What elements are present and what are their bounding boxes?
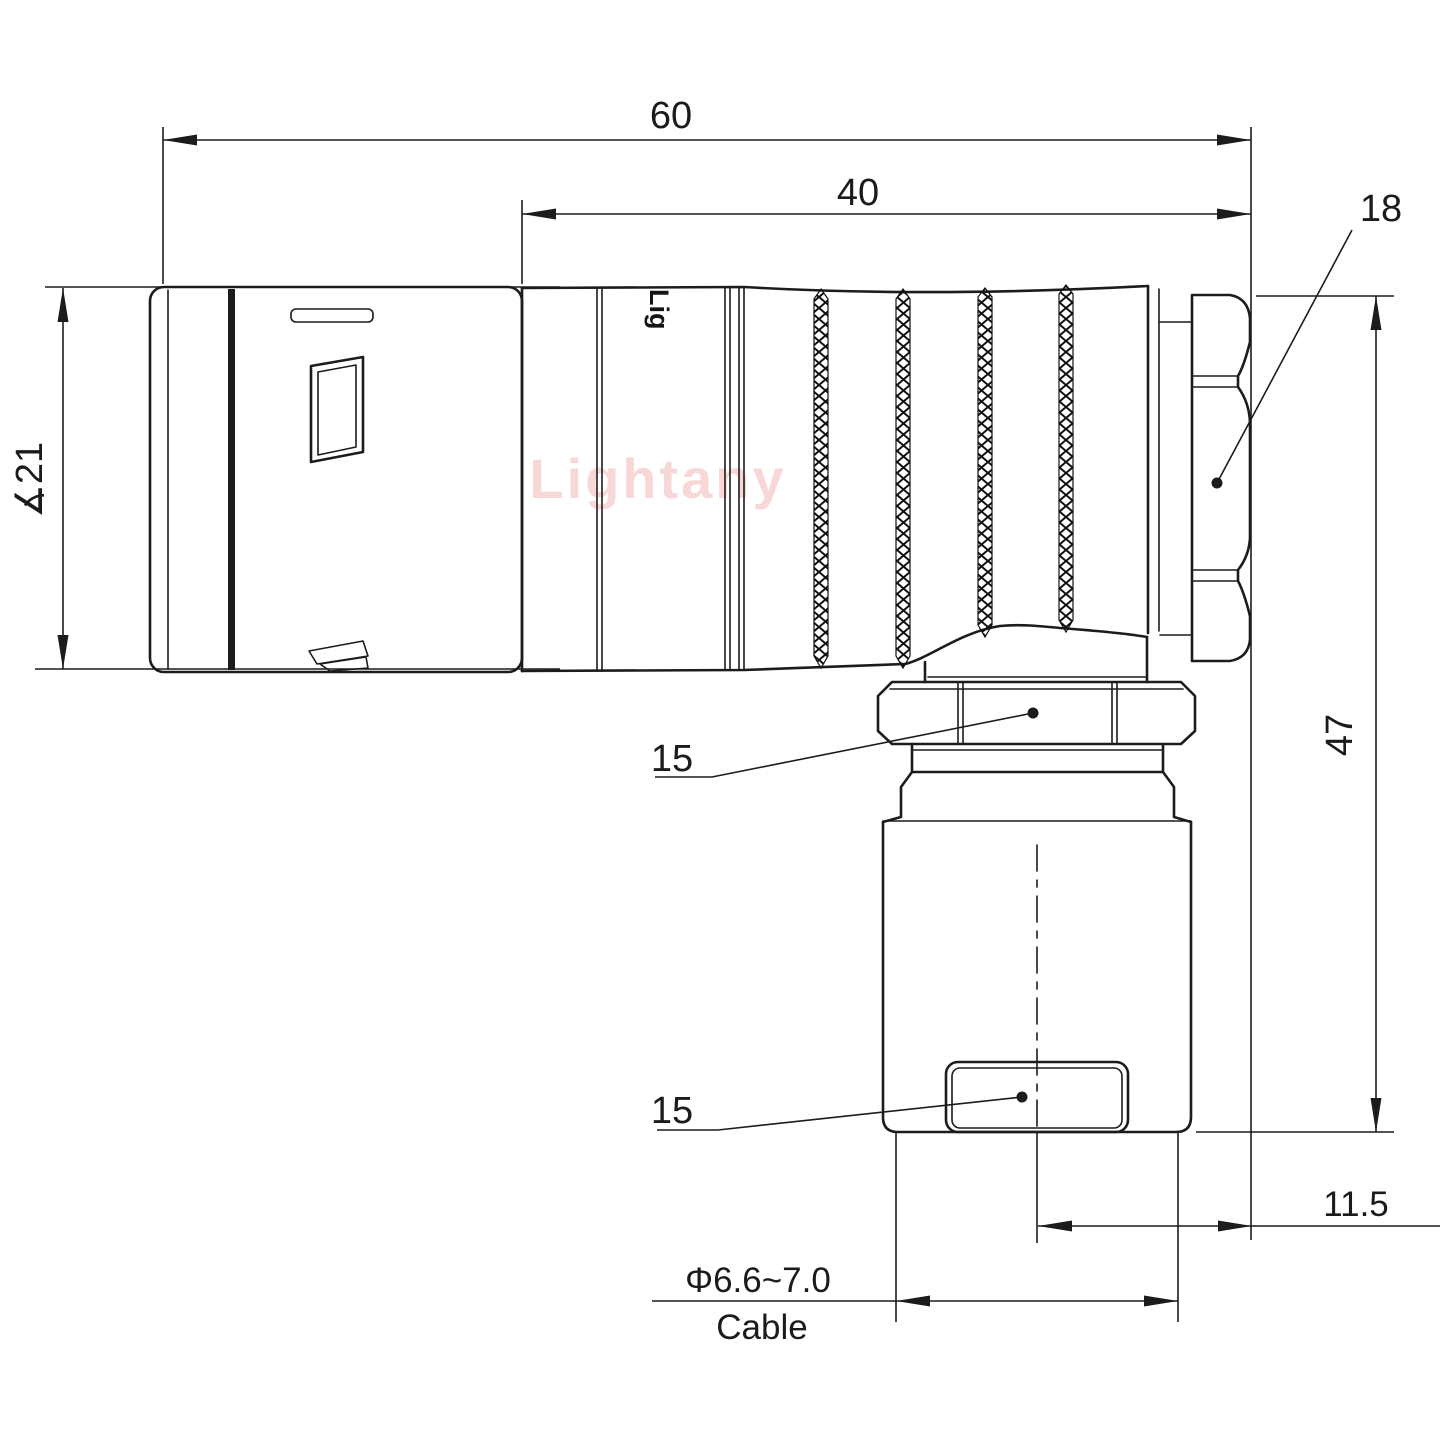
dim-value-15-upper: 15 (651, 738, 693, 780)
dimension-cable: Φ6.6~7.0 Cable (652, 1133, 1178, 1347)
key-boss-top (291, 309, 373, 322)
body-engraving: Lig (644, 289, 674, 330)
key-window-inner (318, 365, 356, 455)
plug-band (228, 289, 235, 670)
arrow-21-bottom (58, 635, 69, 669)
body-engraving-text: Lig (644, 289, 674, 330)
flare-outline (883, 772, 1191, 822)
knurl-band-2 (896, 289, 910, 668)
dim-value-47: 47 (1319, 714, 1361, 756)
back-nut-outline (1192, 295, 1250, 661)
dimension-47: 47 (1196, 296, 1394, 1132)
dim-value-dia21: ∡21 (9, 442, 51, 518)
knurl-bands (814, 285, 1073, 668)
arrow-40-left (522, 209, 556, 220)
plug-shell (150, 287, 522, 672)
dim-label-cable: Cable (716, 1308, 807, 1347)
arrow-21-top (58, 288, 69, 322)
dimension-11-5: 11.5 (1037, 1133, 1440, 1243)
technical-drawing-page: Lightany Lig (0, 0, 1440, 1440)
arrow-47-top (1371, 296, 1382, 330)
arrow-60-right (1217, 135, 1251, 146)
dim-value-cable-diameter: Φ6.6~7.0 (685, 1261, 831, 1300)
arrow-47-bottom (1371, 1098, 1382, 1132)
connector-dimension-drawing: Lightany Lig (0, 0, 1440, 1440)
knurl-band-3 (978, 288, 992, 637)
body-bottom-edge (522, 625, 1147, 671)
dim-value-60: 60 (650, 95, 692, 137)
ring-outline (912, 744, 1163, 772)
body-top-edge (522, 286, 1148, 292)
dimension-15-cable-clamp: 15 (651, 1090, 1022, 1132)
dim-value-15-lower: 15 (651, 1090, 693, 1132)
dimension-15-elbow-nut: 15 (651, 713, 1033, 780)
knurl-band-1 (814, 289, 828, 668)
dimension-40: 40 (522, 172, 1251, 284)
dim-value-40: 40 (837, 172, 879, 214)
back-nut (1160, 295, 1250, 661)
plug-shell-outline (150, 287, 522, 672)
dimension-dia21: ∡21 (9, 287, 560, 669)
dim-value-18: 18 (1360, 188, 1402, 230)
arrow-115-right (1218, 1221, 1252, 1232)
arrow-115-left (1038, 1221, 1072, 1232)
vertical-body (883, 744, 1191, 1132)
dim-value-115: 11.5 (1323, 1185, 1389, 1224)
elbow (925, 637, 1147, 682)
watermark-text: Lightany (529, 447, 786, 510)
collar-lines (1160, 322, 1192, 635)
knurl-band-4 (1059, 285, 1073, 632)
leader-line-15-lower (657, 1097, 1022, 1130)
dimension-18: 18 (1217, 188, 1402, 483)
arrow-cable-left (896, 1296, 930, 1307)
leader-line-18 (1217, 230, 1352, 483)
arrow-cable-right (1144, 1296, 1178, 1307)
arrow-40-right (1217, 209, 1251, 220)
arrow-60-left (163, 135, 197, 146)
